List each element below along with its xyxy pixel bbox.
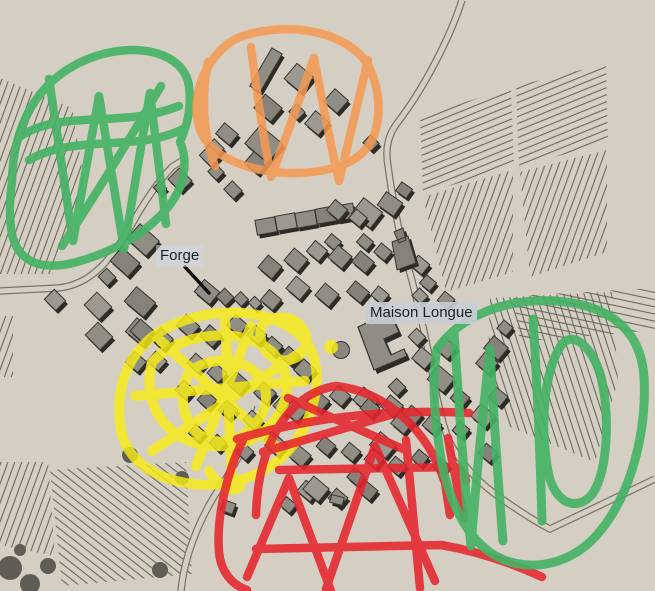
annotated-map-screenshot: Forge Maison Longue — [0, 0, 655, 591]
forge-label: Forge — [156, 245, 203, 267]
building — [295, 210, 317, 228]
tree-icon — [14, 544, 26, 556]
maison-longue-label: Maison Longue — [366, 302, 477, 324]
tree-icon — [40, 558, 56, 574]
building — [255, 217, 277, 235]
building — [275, 213, 297, 231]
tree-icon — [152, 562, 168, 578]
village-map-canvas — [0, 0, 655, 591]
